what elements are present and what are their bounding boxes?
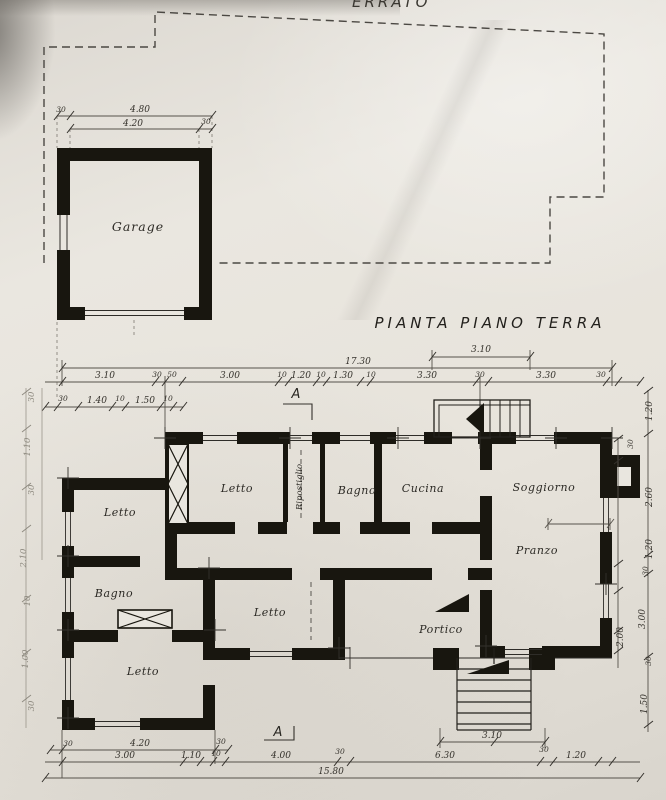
shaft-x-hatch xyxy=(168,444,188,524)
dim-top-row-3: 3.00 xyxy=(220,371,240,381)
dim-right-8: 1.50 xyxy=(640,694,650,714)
section-letter-top: A xyxy=(291,387,301,402)
garage-dim-480: 4.80 xyxy=(129,105,150,115)
garage-dim-420: 4.20 xyxy=(122,119,143,129)
stair-bottom xyxy=(457,648,531,730)
dim-bottom-row2-3: 4.00 xyxy=(270,751,291,761)
dim-top-row-12: 30 xyxy=(596,370,606,379)
dim-left-2: 30 xyxy=(27,484,37,495)
dim-right-1: 30 xyxy=(626,439,635,449)
room-label-pranzo: Pranzo xyxy=(515,544,558,557)
room-label-letto-center: Letto xyxy=(253,606,286,619)
dim-bottom-row2-2: 10 xyxy=(211,749,221,758)
plan-title: PIANTA PIANO TERRA xyxy=(374,314,605,332)
dim-bottom-total: 15.80 xyxy=(318,767,344,777)
dim-top-row-11: 3.30 xyxy=(536,371,556,381)
top-dim-lines xyxy=(45,350,640,432)
dim-right-7: 30 xyxy=(644,656,653,666)
dim-bottom-row2-4: 30 xyxy=(335,747,345,756)
dim-top-row-5: 1.20 xyxy=(291,371,311,381)
room-label-bagno-left: Bagno xyxy=(94,587,133,600)
dim-left-0: 30 xyxy=(27,391,37,402)
dim-left-3: 2.10 xyxy=(19,548,29,569)
dim-right-4: 30 xyxy=(641,566,650,576)
top-dimension-chains: 3.10 17.30 3.10 30 50 3.00 10 1.20 10 1.… xyxy=(42,345,644,432)
room-label-letto-top: Letto xyxy=(220,482,253,495)
stair-top-direction-arrow xyxy=(466,403,484,435)
dim-left-1: 1.10 xyxy=(23,437,33,457)
garage-walls xyxy=(57,148,212,320)
dim-bottom-row1-0: 30 xyxy=(63,739,73,748)
room-label-cucina: Cucina xyxy=(402,482,444,495)
dim-top-row-8: 10 xyxy=(366,370,376,379)
dim-right-5: 3.00 xyxy=(638,609,648,629)
dim-top-sub-1: 1.40 xyxy=(87,396,107,406)
garage-block: Garage 30 4.80 4.20 30 xyxy=(54,105,216,400)
room-label-letto-left: Letto xyxy=(103,506,136,519)
room-label-portico: Portico xyxy=(418,623,463,636)
dim-right-0: 1.20 xyxy=(645,401,655,421)
dim-top-row-10: 30 xyxy=(475,370,485,379)
main-plan xyxy=(57,427,640,730)
dim-top-row-0: 3.10 xyxy=(95,371,115,381)
garage-dim-30-left: 30 xyxy=(56,105,66,114)
dim-right-2: 2.60 xyxy=(645,487,655,508)
dim-left-4: 10 xyxy=(23,595,33,606)
room-label-garage: Garage xyxy=(112,219,164,234)
dim-top-row-9: 3.30 xyxy=(417,371,437,381)
section-marker-bottom: A xyxy=(264,725,294,740)
main-walls xyxy=(62,432,640,730)
dim-right-6: 2.00 xyxy=(616,627,626,648)
section-marker-top: A xyxy=(283,387,312,420)
dim-right-3: 1.20 xyxy=(645,539,655,559)
dim-top-total: 17.30 xyxy=(345,357,371,367)
left-dimension-column: 30 1.10 30 2.10 10 1.00 30 xyxy=(19,388,42,728)
room-label-soggiorno: Soggiorno xyxy=(513,481,576,494)
dim-left-6: 30 xyxy=(27,700,37,711)
cutoff-caption-text: ERRATO xyxy=(352,0,430,11)
dim-left-5: 1.00 xyxy=(21,649,31,669)
dim-bottom-short: 3.10 xyxy=(482,731,502,741)
room-label-bagno-top: Bagno xyxy=(337,484,376,497)
dim-top-row-4: 10 xyxy=(277,370,287,379)
right-dimension-column: 1.20 30 2.60 1.20 30 3.00 2.00 30 1.50 xyxy=(614,387,655,732)
dim-bottom-row2-7: 1.20 xyxy=(566,751,586,761)
stair-top xyxy=(434,400,530,437)
dim-top-row-6: 10 xyxy=(316,370,326,379)
dim-bottom-row2-0: 3.00 xyxy=(115,751,135,761)
flue-x-hatch xyxy=(118,610,172,628)
dim-bottom-row2-5: 6.30 xyxy=(435,751,455,761)
scanned-floor-plan-page: ERRATO Garage 30 4.80 4.20 30 PIANTA PIA… xyxy=(0,0,666,800)
dim-top-row-7: 1.30 xyxy=(333,371,353,381)
dim-top-sub-2: 10 xyxy=(115,394,125,403)
dim-top-row-2: 50 xyxy=(167,370,177,379)
room-label-letto-bottom: Letto xyxy=(126,665,159,678)
dim-top-sub-3: 1.50 xyxy=(135,396,155,406)
dim-top-sub-0: 30 xyxy=(58,394,68,403)
bottom-dimension-chains: 3.10 30 4.20 30 3.00 1.10 10 4.00 30 6.3… xyxy=(42,728,644,782)
dim-bottom-row1-2: 30 xyxy=(216,737,226,746)
section-letter-bottom: A xyxy=(273,725,283,740)
dim-top-row-1: 30 xyxy=(152,370,162,379)
dim-top-sub-4: 10 xyxy=(163,394,173,403)
dim-bottom-row2-6: 30 xyxy=(539,745,549,754)
entrance-arrow xyxy=(435,594,469,612)
chimney-slot xyxy=(617,467,631,486)
dim-bottom-row2-1: 1.10 xyxy=(181,751,201,761)
room-label-ripostiglio: Ripostiglio xyxy=(295,464,305,511)
section-bracket-top xyxy=(283,404,312,420)
dim-upper-short: 3.10 xyxy=(471,345,491,355)
garage-dim-30-right: 30 xyxy=(201,117,211,126)
dim-bottom-row1-1: 4.20 xyxy=(129,739,150,749)
floor-plan-drawing: ERRATO Garage 30 4.80 4.20 30 PIANTA PIA… xyxy=(0,0,666,800)
top-dim-ticks xyxy=(42,352,644,411)
stair-bottom-direction-arrow xyxy=(467,660,509,674)
